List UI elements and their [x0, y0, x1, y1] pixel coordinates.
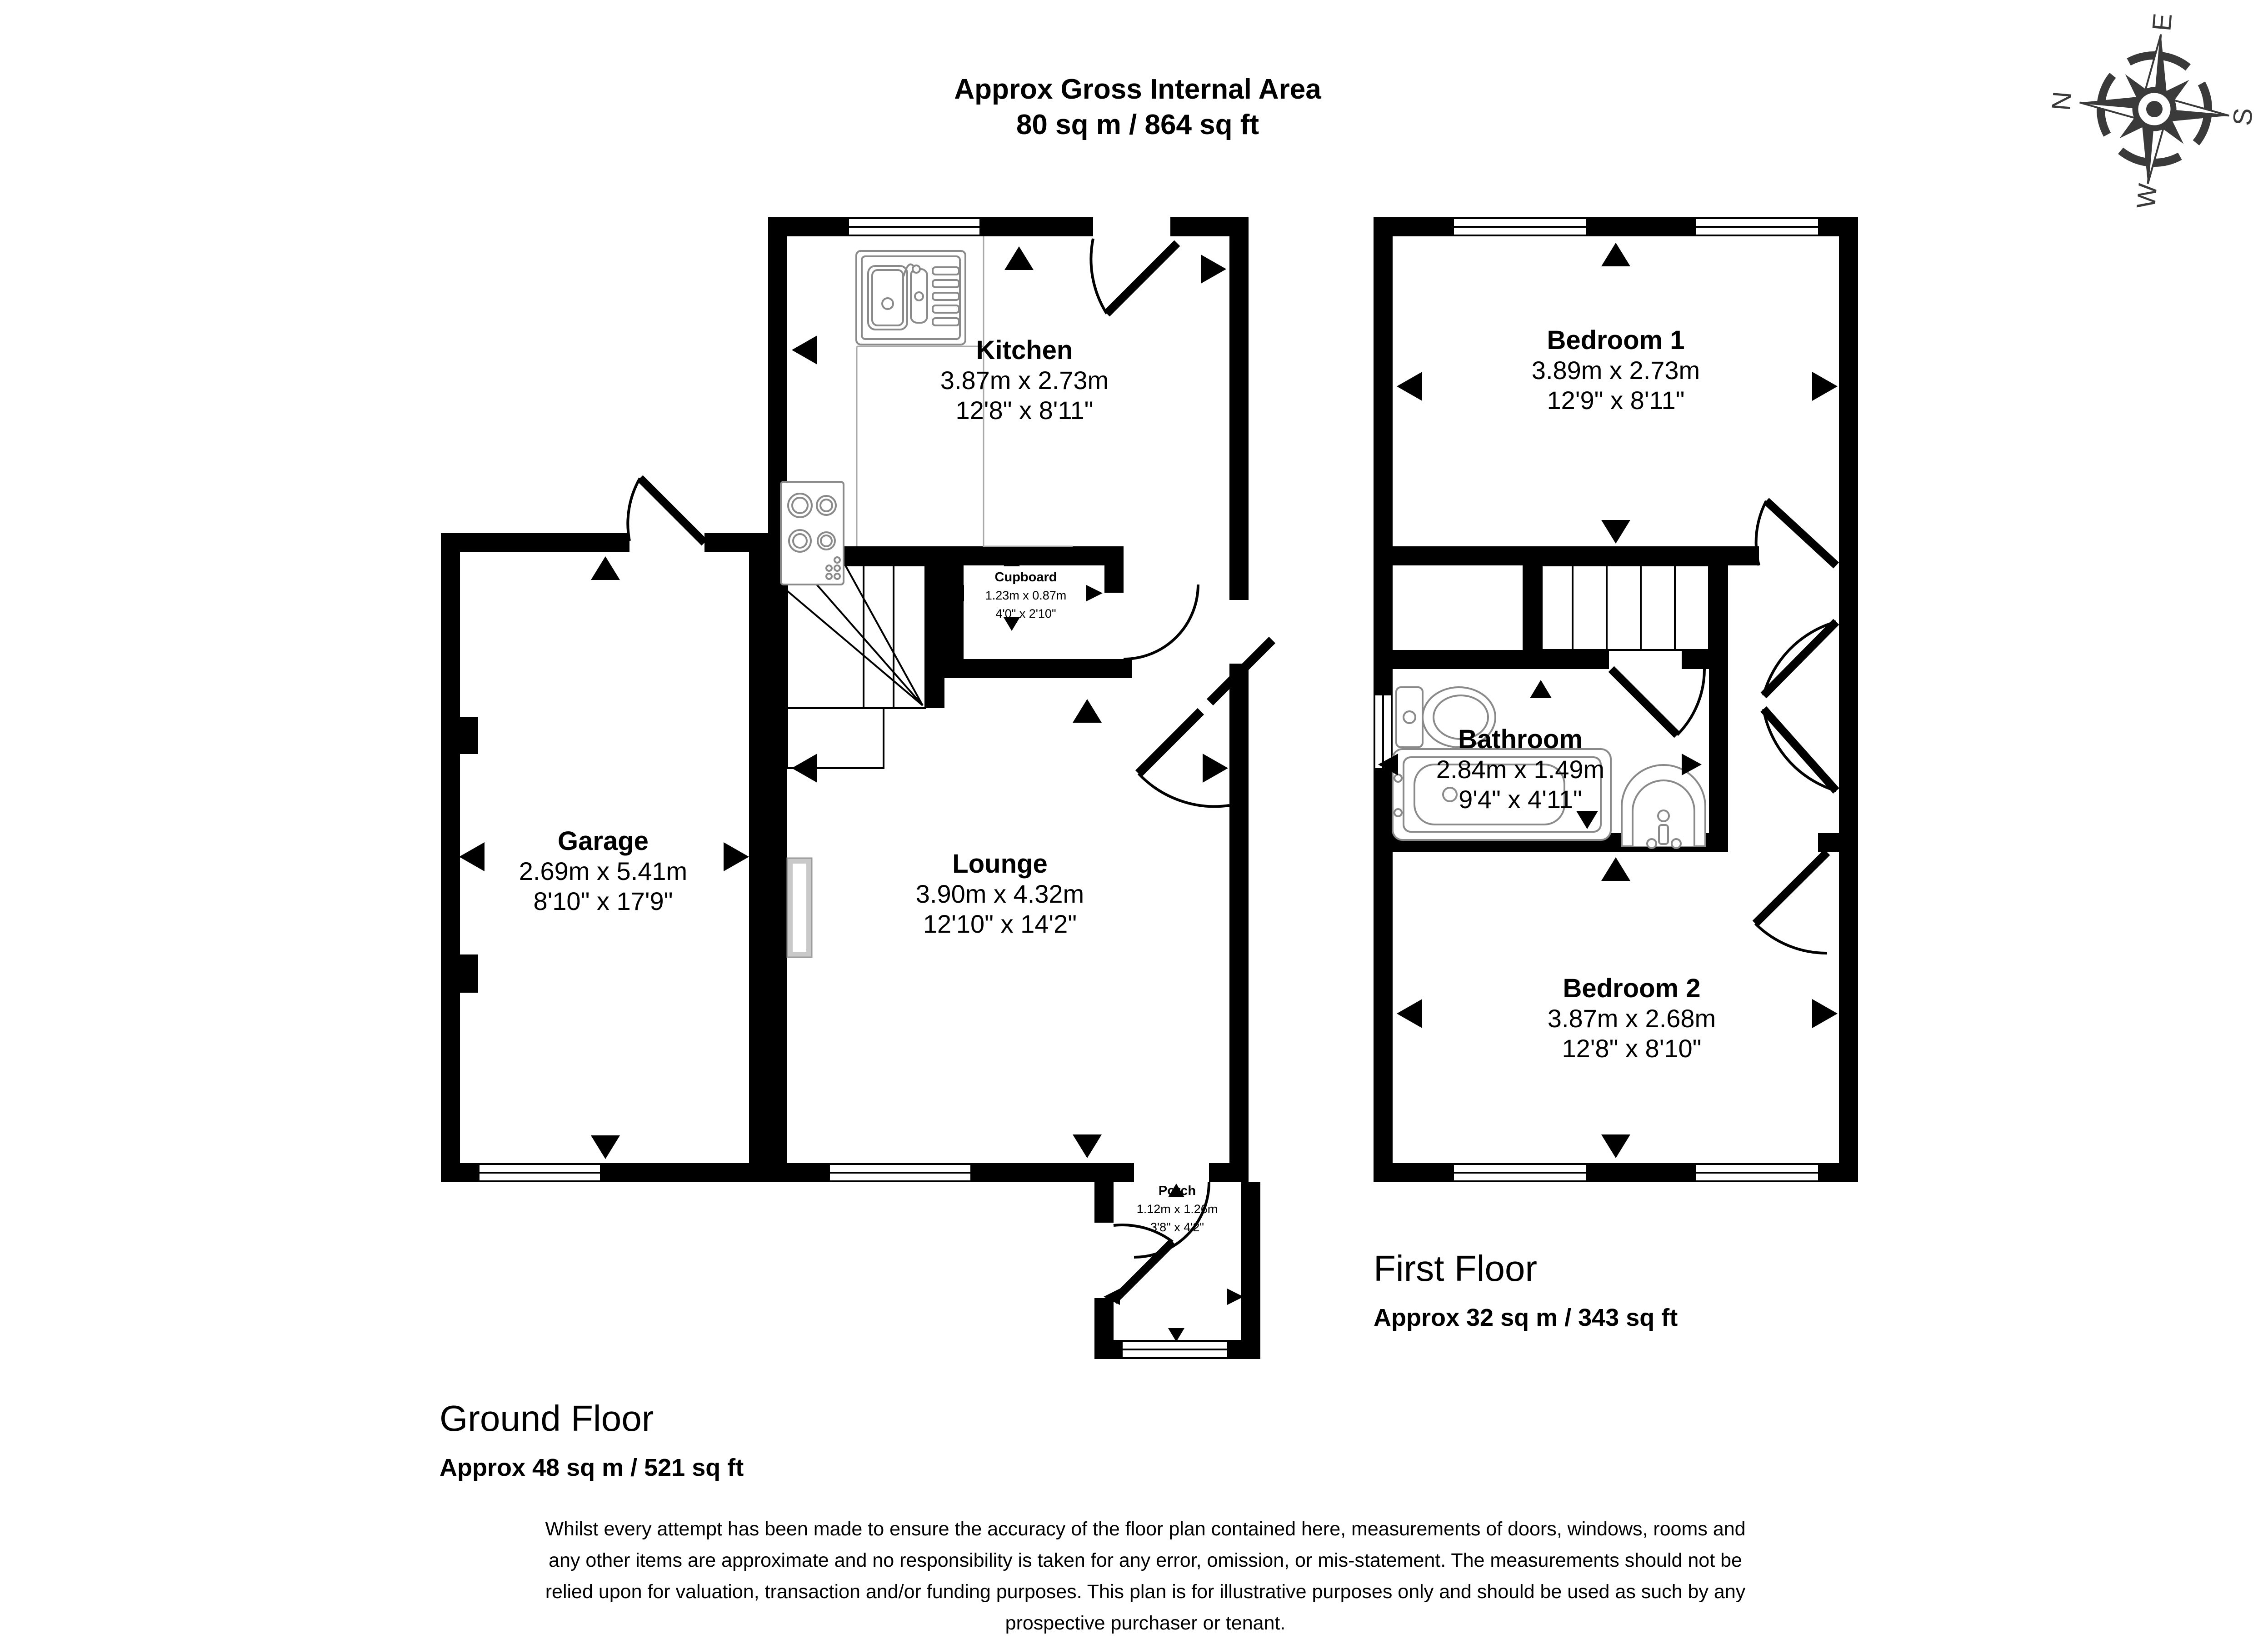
room-size-metric: 3.90m x 4.32m — [916, 879, 1084, 909]
room-size-metric: 2.69m x 5.41m — [519, 856, 687, 886]
room-label-bedroom1: Bedroom 1 3.89m x 2.73m 12'9" x 8'11" — [1532, 325, 1700, 415]
compass-icon: N E S W — [2038, 4, 2266, 218]
room-name: Bedroom 2 — [1548, 974, 1716, 1004]
window-icon — [480, 217, 1227, 1359]
room-name: Cupboard — [964, 568, 1088, 586]
room-label-garage: Garage 2.69m x 5.41m 8'10" x 17'9" — [519, 826, 687, 916]
disclaimer-text: Whilst every attempt has been made to en… — [373, 1514, 1918, 1639]
kitchen-sink-icon — [856, 251, 965, 345]
room-name: Kitchen — [940, 335, 1109, 365]
room-label-bathroom: Bathroom 2.84m x 1.49m 9'4" x 4'11" — [1436, 725, 1604, 815]
stairs-icon — [787, 565, 925, 768]
room-size-metric: 3.87m x 2.68m — [1548, 1004, 1716, 1034]
floor-name: First Floor — [1374, 1249, 1678, 1288]
ground-floor-heading: Ground Floor Approx 48 sq m / 521 sq ft — [440, 1399, 744, 1482]
room-size-imperial: 12'8" x 8'11" — [940, 395, 1109, 425]
room-name: Bedroom 1 — [1532, 325, 1700, 355]
room-size-metric: 1.12m x 1.26m — [1137, 1200, 1218, 1218]
basin-icon — [1622, 765, 1705, 848]
radiator-icon — [787, 858, 812, 957]
room-label-porch: Porch 1.12m x 1.26m 3'8" x 4'2" — [1137, 1182, 1218, 1236]
first-floor-heading: First Floor Approx 32 sq m / 343 sq ft — [1374, 1249, 1678, 1332]
floorplan-canvas: N E S W — [0, 0, 2268, 1634]
compass-east-label: E — [2147, 12, 2178, 32]
room-size-metric: 2.84m x 1.49m — [1436, 755, 1604, 785]
room-size-imperial: 12'8" x 8'10" — [1548, 1034, 1716, 1064]
room-label-bedroom2: Bedroom 2 3.87m x 2.68m 12'8" x 8'10" — [1548, 974, 1716, 1064]
hob-icon — [781, 482, 844, 585]
room-size-metric: 3.89m x 2.73m — [1532, 355, 1700, 385]
page-title: Approx Gross Internal Area 80 sq m / 864… — [954, 72, 1321, 143]
title-line1: Approx Gross Internal Area — [954, 72, 1321, 107]
disclaimer-line2: any other items are approximate and no r… — [373, 1545, 1918, 1576]
room-label-kitchen: Kitchen 3.87m x 2.73m 12'8" x 8'11" — [940, 335, 1109, 425]
disclaimer-line1: Whilst every attempt has been made to en… — [373, 1514, 1918, 1545]
disclaimer-line3: relied upon for valuation, transaction a… — [373, 1576, 1918, 1608]
disclaimer-line4: prospective purchaser or tenant. — [373, 1608, 1918, 1639]
compass-west-label: W — [2131, 182, 2163, 210]
room-name: Porch — [1137, 1182, 1218, 1200]
compass-south-label: S — [2228, 107, 2258, 127]
title-line2: 80 sq m / 864 sq ft — [954, 107, 1321, 143]
floorplan-page: { "title": { "line1": "Approx Gross Inte… — [0, 0, 2268, 1634]
room-label-cupboard: Kitchen understairs Cupboard 1.23m x 0.8… — [964, 550, 1088, 623]
room-size-imperial: 12'9" x 8'11" — [1532, 385, 1700, 415]
room-size-imperial: 4'0" x 2'10" — [964, 605, 1088, 623]
floor-name: Ground Floor — [440, 1399, 744, 1438]
room-label-lounge: Lounge 3.90m x 4.32m 12'10" x 14'2" — [916, 849, 1084, 939]
floor-area: Approx 32 sq m / 343 sq ft — [1374, 1304, 1678, 1332]
room-size-imperial: 9'4" x 4'11" — [1436, 785, 1604, 815]
room-size-imperial: 3'8" x 4'2" — [1137, 1218, 1218, 1236]
room-name: Garage — [519, 826, 687, 856]
room-name: Bathroom — [1436, 725, 1604, 755]
room-size-metric: 3.87m x 2.73m — [940, 365, 1109, 395]
room-name: Lounge — [916, 849, 1084, 879]
compass-north-label: N — [2046, 90, 2077, 111]
garage-pier — [460, 954, 478, 993]
room-size-imperial: 12'10" x 14'2" — [916, 909, 1084, 939]
room-name: Kitchen understairs — [964, 550, 1088, 568]
room-size-metric: 1.23m x 0.87m — [964, 586, 1088, 605]
garage-pier — [460, 717, 478, 754]
floor-area: Approx 48 sq m / 521 sq ft — [440, 1454, 744, 1482]
stairs-icon — [1542, 565, 1709, 650]
room-size-imperial: 8'10" x 17'9" — [519, 886, 687, 916]
